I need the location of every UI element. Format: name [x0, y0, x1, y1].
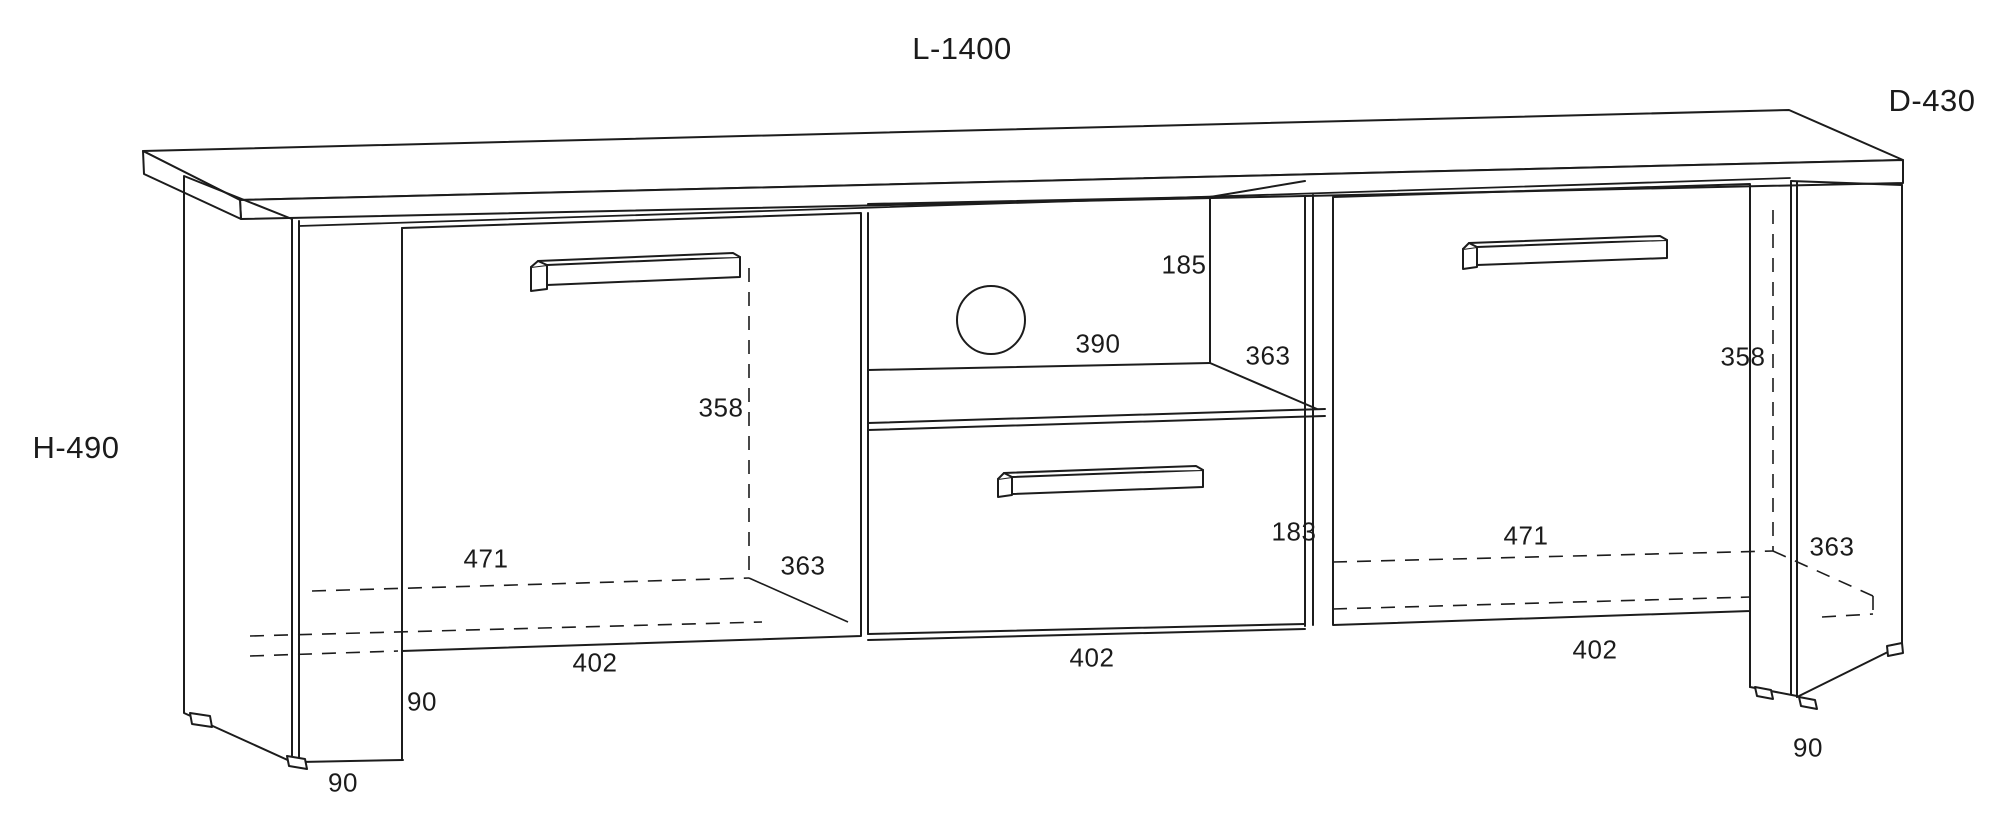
middle-bottom-edge-1: [868, 624, 1305, 634]
cable-hole: [957, 286, 1025, 354]
dimension-label-length-total: L-1400: [912, 31, 1012, 67]
drawer-handle: [998, 466, 1203, 497]
dimension-label-shelf-height: 185: [1162, 250, 1207, 281]
right-interior-bottom-dashed-2: [1333, 597, 1750, 609]
middle-bottom-edge-2: [868, 629, 1305, 640]
drawer-top-edge-1: [868, 409, 1325, 423]
drawer-handle-cap: [998, 477, 1012, 497]
cabinet-line-drawing: [0, 0, 2010, 822]
dimension-label-shelf-width: 390: [1076, 329, 1121, 360]
dimension-label-right-interior-height: 358: [1721, 342, 1766, 373]
dimension-label-right-door-width: 402: [1573, 635, 1618, 666]
left-front-foot: [287, 756, 307, 769]
dimension-label-drawer-height: 183: [1272, 517, 1317, 548]
dimension-label-height-total: H-490: [33, 430, 120, 466]
left-door-handle-cap: [531, 265, 547, 291]
drawer-top-edge-2: [868, 416, 1325, 430]
shelf-back-wall-bottom: [868, 363, 1210, 370]
dimension-label-leg-height-left-inner: 90: [407, 687, 437, 718]
dimension-label-right-interior-depth: 363: [1810, 532, 1855, 563]
left-door-handle: [531, 253, 740, 291]
left-back-foot: [190, 713, 212, 727]
dimension-label-left-interior-width: 471: [464, 544, 509, 575]
right-front-foot: [1799, 697, 1817, 709]
right-panel-bottom-edge: [1797, 645, 1902, 697]
left-interior-bottom-dashed-2: [250, 622, 762, 636]
dimension-label-leg-height-left-front: 90: [328, 768, 358, 799]
dimension-label-left-interior-depth: 363: [781, 551, 826, 582]
right-back-foot: [1887, 643, 1903, 656]
middle-section: [861, 181, 1325, 640]
left-interior-bottom-dashed-3: [250, 651, 398, 656]
left-side-panel: [184, 176, 403, 769]
right-door-handle-bar: [1477, 240, 1667, 265]
dimension-label-depth-total: D-430: [1889, 83, 1976, 119]
left-leg-floor-edge: [300, 760, 403, 762]
left-door-handle-bar: [547, 257, 740, 285]
furniture-dimension-diagram: L-1400D-430H-490185390363358358471471363…: [0, 0, 2010, 822]
dimension-label-shelf-depth: 363: [1246, 341, 1291, 372]
right-leg-foot: [1755, 687, 1773, 699]
right-interior-bottom-back-dashed: [1333, 551, 1773, 562]
right-door-handle: [1463, 236, 1667, 269]
drawer-handle-bar: [1012, 470, 1203, 494]
right-door: [1333, 184, 1750, 625]
left-interior-depth-diagonal: [749, 578, 848, 622]
dimension-label-leg-height-right: 90: [1793, 733, 1823, 764]
left-side-panel-outer-face: [184, 176, 292, 762]
dimension-label-left-interior-height: 358: [699, 393, 744, 424]
left-door: [402, 213, 861, 651]
right-interior-front-bottom-dashed: [1822, 614, 1873, 617]
left-interior-bottom-back-dashed: [312, 578, 749, 591]
dimension-label-middle-width: 402: [1070, 643, 1115, 674]
left-door-hidden-lines: [250, 268, 762, 656]
dimension-label-right-interior-width: 471: [1504, 521, 1549, 552]
dimension-label-left-door-width: 402: [573, 648, 618, 679]
right-door-handle-cap: [1463, 247, 1477, 269]
